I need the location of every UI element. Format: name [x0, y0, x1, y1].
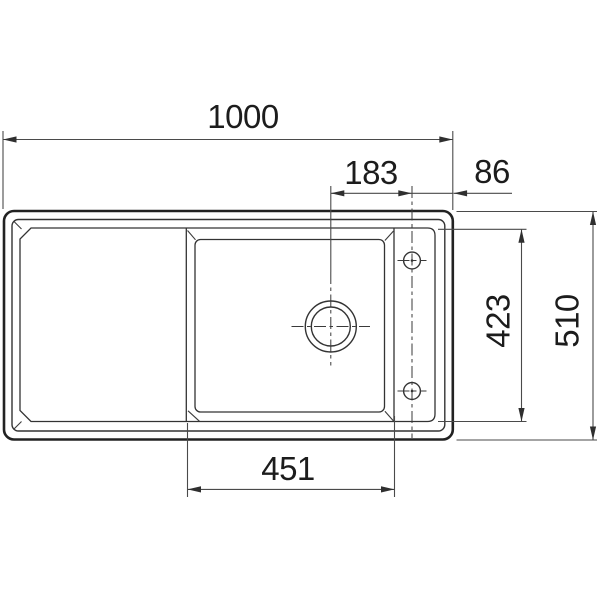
- dimension-tap-to-edge: 86: [454, 153, 512, 197]
- dimension-overall-depth: 510: [457, 212, 598, 441]
- bowl-corner-chamfer-tick: [385, 411, 393, 421]
- arrowhead-bottom: [518, 408, 524, 422]
- dim-label-basin-width: 451: [261, 450, 315, 487]
- arrowhead-right: [381, 486, 395, 492]
- dim-label-tap-to-edge: 86: [474, 153, 510, 190]
- sink-technical-drawing-page: 1000 183 86 423: [0, 0, 600, 600]
- bowl: [186, 229, 394, 422]
- arrowhead-left: [188, 486, 202, 492]
- bowl-corner-chamfer-tick: [188, 231, 196, 240]
- dim-label-overall-width: 1000: [207, 98, 279, 135]
- dimension-basin-front-to-back: 423: [438, 229, 527, 421]
- drain-hole: [292, 272, 371, 366]
- tap-holes: [398, 186, 427, 438]
- arrowhead-right: [439, 136, 453, 142]
- dim-label-basin-front-to-back: 423: [479, 294, 516, 348]
- arrowhead-left: [331, 190, 345, 196]
- drainer-area: [14, 221, 436, 430]
- dim-label-overall-depth: 510: [548, 294, 585, 348]
- corner-chamfer-tick: [14, 221, 22, 229]
- arrowhead-right: [398, 190, 412, 196]
- corner-chamfer-tick: [14, 422, 22, 430]
- dim-label-drain-to-tap: 183: [344, 154, 398, 191]
- bowl-corner-chamfer-tick: [385, 231, 394, 241]
- bowl-corner-chamfer-tick: [188, 411, 200, 422]
- sink-technical-drawing: 1000 183 86 423: [0, 0, 600, 600]
- arrowhead-top: [518, 229, 524, 243]
- sink-outer-edge: [4, 211, 453, 440]
- sink-rim-inner-edge: [12, 220, 445, 432]
- drainer-floor-outline: [20, 228, 435, 422]
- sink-outline: [4, 211, 453, 440]
- arrowhead-bottom: [590, 427, 596, 441]
- dimension-basin-width: 451: [188, 416, 395, 497]
- arrowhead-left: [3, 136, 17, 142]
- arrowhead-top: [590, 212, 596, 226]
- arrowhead-left: [454, 190, 468, 196]
